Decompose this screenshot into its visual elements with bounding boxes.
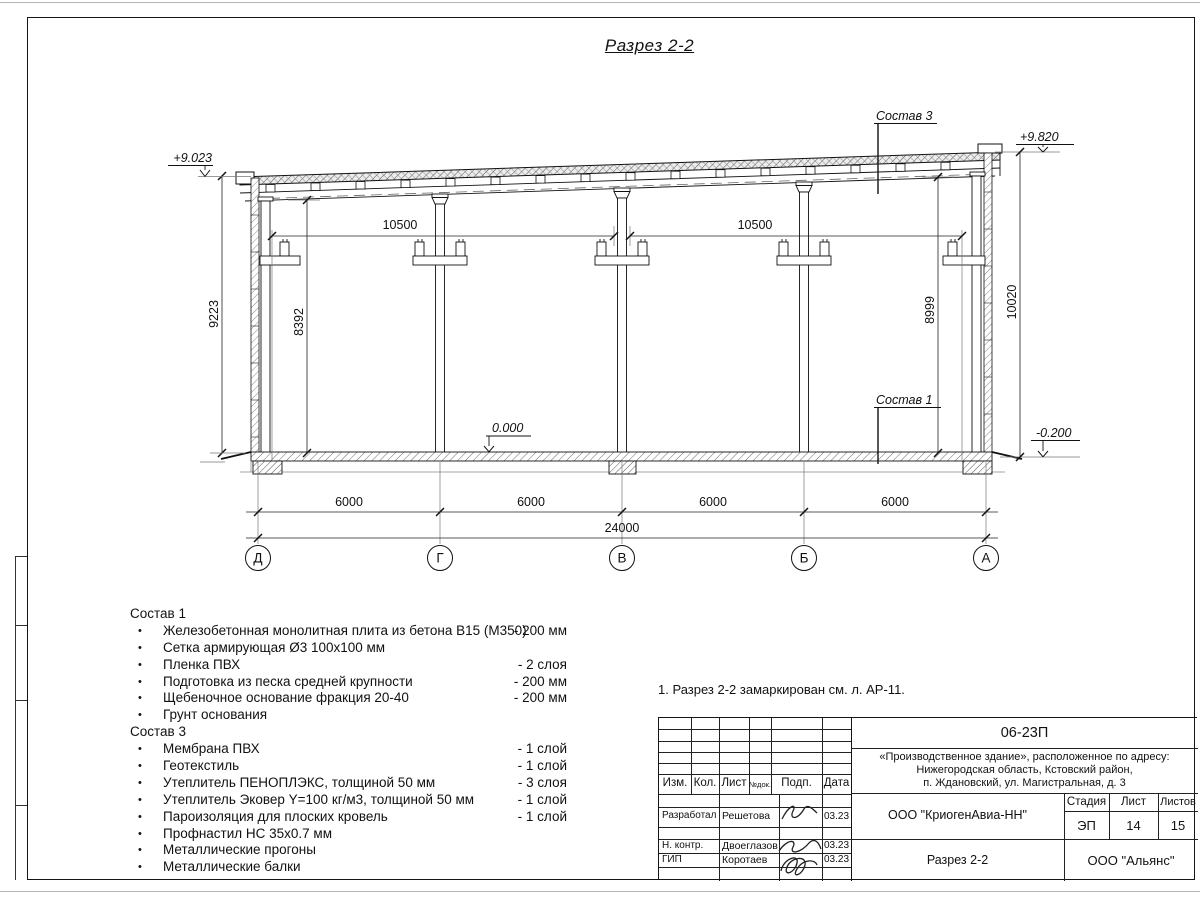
- section-drawing: 10500 10500 9223 8392 8999 10020 +9.023: [0, 0, 1200, 620]
- signature: [777, 797, 822, 827]
- dim-label: 9223: [207, 300, 221, 328]
- tb-col-doc: №док.: [749, 780, 771, 789]
- bullet-icon: •: [138, 707, 142, 724]
- dim-label: 6000: [335, 495, 363, 509]
- left-margin-divider: [15, 700, 27, 701]
- tb-sheet-value: 14: [1109, 818, 1158, 833]
- axis-label: Б: [800, 551, 809, 566]
- tb-gip-date: 03.23: [822, 854, 851, 865]
- column-g: [413, 194, 467, 453]
- item-value: - 200 мм: [514, 690, 567, 707]
- tb-line: [659, 763, 851, 764]
- item-value: - 1 слой: [518, 809, 567, 826]
- item-text: Пленка ПВХ: [163, 657, 240, 674]
- item-value: - 3 слоя: [518, 775, 567, 792]
- bullet-icon: •: [138, 657, 142, 674]
- list-item: •Металлические прогоны: [130, 842, 567, 859]
- sostav3-title: Состав 3: [130, 724, 567, 741]
- elevation-ground: -0.200: [1031, 426, 1080, 457]
- list-item: •Мембрана ПВХ- 1 слой: [130, 741, 567, 758]
- floor-slab: [200, 452, 1022, 474]
- sostav1-leader-label: Состав 1: [876, 393, 932, 407]
- tb-sheets-label: Листов: [1158, 796, 1198, 808]
- elevation-right: +9.820: [1016, 130, 1074, 152]
- dim-label: 8999: [923, 296, 937, 324]
- list-item: •Щебеночное основание фракция 20-40- 200…: [130, 690, 567, 707]
- column-b: [777, 182, 831, 453]
- list-item: •Металлические балки: [130, 859, 567, 876]
- bullet-icon: •: [138, 792, 142, 809]
- list-item: •Пароизоляция для плоских кровель- 1 сло…: [130, 809, 567, 826]
- dim-heights: 9223 8392 8999 10020: [207, 148, 1080, 461]
- dim-label: 10020: [1005, 285, 1019, 320]
- item-value: - 2 слоя: [518, 657, 567, 674]
- list-item: •Сетка армирующая Ø3 100х100 мм: [130, 640, 567, 657]
- tb-developed-label: Разработал: [662, 810, 716, 821]
- sostav3-leader-label: Состав 3: [876, 109, 932, 123]
- dim-label: 10500: [738, 218, 773, 232]
- tb-line: [659, 827, 851, 828]
- bullet-icon: •: [138, 741, 142, 758]
- title-block: Изм. Кол. Лист №док. Подп. Дата Разработ…: [658, 717, 1197, 880]
- list-item: •Железобетонная монолитная плита из бето…: [130, 623, 567, 640]
- tb-ncontr-label: Н. контр.: [662, 840, 703, 851]
- elevation-label: +9.023: [173, 151, 212, 165]
- axis-bubbles: Д Г В Б А: [246, 546, 999, 571]
- tb-gip-name: Коротаев: [722, 854, 767, 866]
- tb-gip-label: ГИП: [662, 854, 682, 865]
- dim-label: 6000: [517, 495, 545, 509]
- tb-line: [659, 794, 851, 795]
- foundation-pad: [609, 461, 636, 474]
- foundation-pad: [253, 461, 282, 474]
- bullet-icon: •: [138, 826, 142, 843]
- tb-line: [1064, 811, 1198, 812]
- signature: [773, 835, 825, 881]
- item-text: Мембрана ПВХ: [163, 741, 260, 758]
- axis-label: В: [617, 551, 626, 566]
- item-value: - 1 слой: [518, 741, 567, 758]
- tb-col-list: Лист: [719, 777, 749, 789]
- item-text: Металлические балки: [163, 859, 301, 876]
- elevation-label: 0.000: [492, 421, 523, 435]
- list-item: •Профнастил НС 35х0.7 мм: [130, 826, 567, 843]
- tb-line: [851, 748, 1198, 749]
- list-item: •Пленка ПВХ- 2 слоя: [130, 657, 567, 674]
- tb-col-data: Дата: [822, 777, 851, 789]
- list-item: •Геотекстиль- 1 слой: [130, 758, 567, 775]
- axis-label: А: [981, 551, 990, 566]
- paper-edge-bottom: [0, 891, 1200, 892]
- item-text: Сетка армирующая Ø3 100х100 мм: [163, 640, 385, 657]
- item-text: Металлические прогоны: [163, 842, 316, 859]
- bullet-icon: •: [138, 674, 142, 691]
- blueprint-sheet: { "sheet": { "title": "Разрез 2-2" }, "s…: [0, 0, 1200, 900]
- bullet-icon: •: [138, 640, 142, 657]
- tb-company: ООО "Альянс": [1064, 853, 1198, 868]
- dim-label: 24000: [605, 521, 640, 535]
- item-text: Утеплитель ПЕНОПЛЭКС, толщиной 50 мм: [163, 775, 435, 792]
- tb-sheet-label: Лист: [1109, 796, 1158, 808]
- bullet-icon: •: [138, 809, 142, 826]
- tb-developed-name: Решетова: [722, 810, 770, 822]
- list-item: •Утеплитель ПЕНОПЛЭКС, толщиной 50 мм- 3…: [130, 775, 567, 792]
- tb-line: [659, 807, 851, 808]
- tb-org: ООО "КриогенАвиа-НН": [851, 808, 1064, 822]
- item-value: - 200 мм: [514, 674, 567, 691]
- tb-col-podp: Подп.: [771, 777, 822, 789]
- dim-bays: 10500 10500: [268, 218, 966, 460]
- elevation-floor: 0.000: [484, 421, 531, 452]
- list-item: •Утеплитель Эковер Y=100 кг/м3, толщиной…: [130, 792, 567, 809]
- elevation-label: +9.820: [1020, 130, 1059, 144]
- tb-line: [659, 752, 851, 753]
- composition-lists: Состав 1 •Железобетонная монолитная плит…: [130, 606, 567, 876]
- tb-line: [659, 729, 851, 730]
- dim-label: 6000: [881, 495, 909, 509]
- item-text: Пароизоляция для плоских кровель: [163, 809, 388, 826]
- item-value: - 1 слой: [518, 792, 567, 809]
- bullet-icon: •: [138, 775, 142, 792]
- tb-line: [851, 793, 1198, 794]
- dim-label: 10500: [383, 218, 418, 232]
- tb-project-line1: «Производственное здание», расположенное…: [851, 751, 1198, 763]
- item-text: Геотекстиль: [163, 758, 239, 775]
- tb-doc-number: 06-23П: [851, 725, 1198, 741]
- tb-sheets-value: 15: [1158, 818, 1198, 833]
- item-text: Грунт основания: [163, 707, 267, 724]
- tb-project-line2: Нижегородская область, Кстовский район,: [851, 764, 1198, 776]
- tb-stage-value: ЭП: [1064, 818, 1109, 833]
- item-value: - 1 слой: [518, 758, 567, 775]
- sheet-note: 1. Разрез 2-2 замаркирован см. л. АР-11.: [658, 682, 905, 697]
- tb-line: [659, 774, 851, 775]
- tb-project-line3: п. Ждановский, ул. Магистральная, д. 3: [851, 777, 1198, 789]
- apron-right: [992, 452, 1022, 459]
- elevation-label: -0.200: [1036, 426, 1071, 440]
- bullet-icon: •: [138, 623, 142, 640]
- tb-col-kol: Кол.: [691, 777, 719, 789]
- item-text: Утеплитель Эковер Y=100 кг/м3, толщиной …: [163, 792, 474, 809]
- bullet-icon: •: [138, 758, 142, 775]
- bullet-icon: •: [138, 842, 142, 859]
- bullet-icon: •: [138, 859, 142, 876]
- axis-label: Г: [436, 551, 444, 566]
- tb-col-izm: Изм.: [659, 777, 691, 789]
- item-value: - 200 мм: [514, 623, 567, 640]
- wall-right: [943, 153, 992, 453]
- dim-label: 8392: [292, 308, 306, 336]
- list-item: •Грунт основания: [130, 707, 567, 724]
- axis-label: Д: [253, 551, 262, 566]
- tb-line: [659, 741, 851, 742]
- item-text: Щебеночное основание фракция 20-40: [163, 690, 409, 707]
- foundation-pad: [963, 461, 992, 474]
- left-margin-divider: [15, 805, 27, 806]
- tb-drawing-name: Разрез 2-2: [851, 853, 1064, 867]
- item-text: Профнастил НС 35х0.7 мм: [163, 826, 332, 843]
- tb-ncontr-date: 03.23: [822, 840, 851, 851]
- left-margin-divider: [15, 625, 27, 626]
- tb-ncontr-name: Двоеглазов: [722, 840, 778, 852]
- tb-line: [719, 718, 720, 881]
- tb-developed-date: 03.23: [822, 811, 851, 822]
- dim-label: 6000: [699, 495, 727, 509]
- column-v: [595, 188, 649, 453]
- bullet-icon: •: [138, 690, 142, 707]
- list-item: •Подготовка из песка средней крупности- …: [130, 674, 567, 691]
- item-text: Железобетонная монолитная плита из бетон…: [163, 623, 527, 640]
- tb-stage-label: Стадия: [1064, 796, 1109, 808]
- dim-spans: 6000 6000 6000 6000 24000: [246, 462, 998, 544]
- item-text: Подготовка из песка средней крупности: [163, 674, 413, 691]
- sostav1-title: Состав 1: [130, 606, 567, 623]
